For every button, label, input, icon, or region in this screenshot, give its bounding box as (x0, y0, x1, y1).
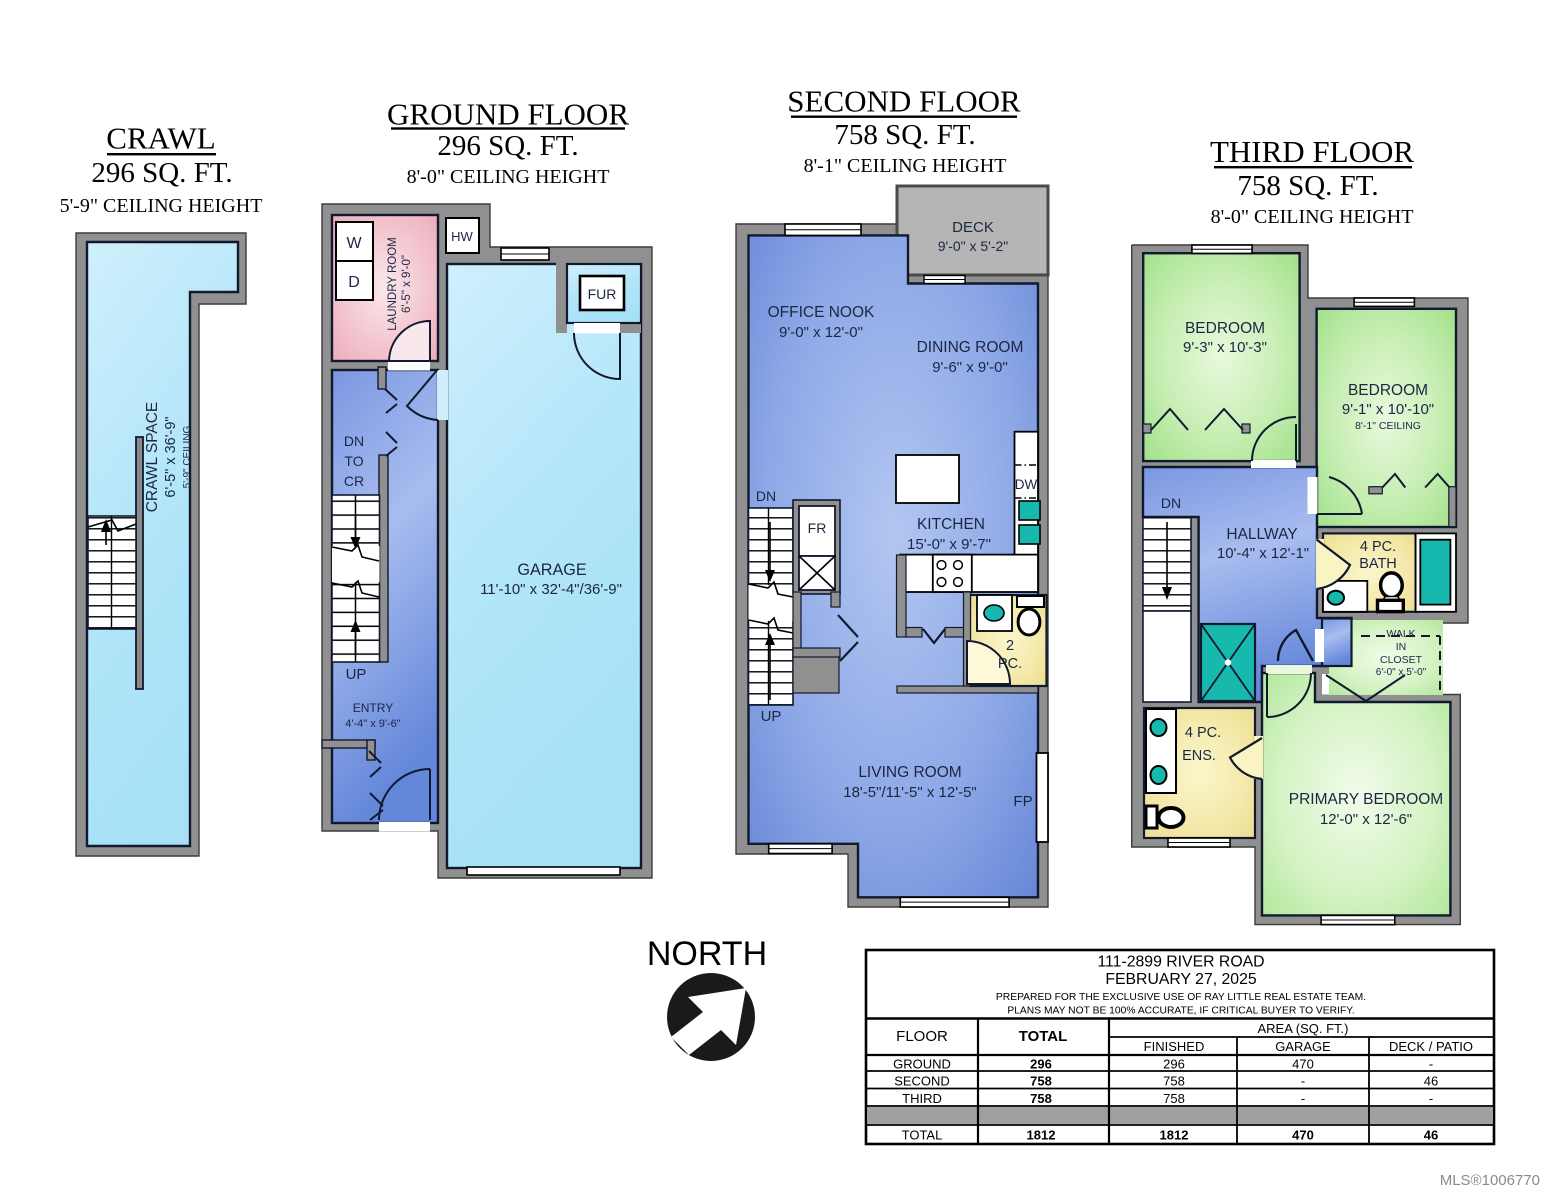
svg-text:KITCHEN: KITCHEN (917, 516, 985, 533)
svg-text:4'-4" x 9'-6": 4'-4" x 9'-6" (345, 718, 401, 730)
svg-text:DW: DW (1015, 477, 1038, 492)
svg-text:THIRD FLOOR: THIRD FLOOR (1210, 134, 1414, 169)
svg-text:GROUND: GROUND (893, 1057, 951, 1072)
svg-text:HW: HW (451, 229, 473, 244)
svg-text:18'-5"/11'-5" x 12'-5": 18'-5"/11'-5" x 12'-5" (843, 784, 977, 801)
svg-text:PREPARED FOR THE EXCLUSIVE USE: PREPARED FOR THE EXCLUSIVE USE OF RAY LI… (996, 992, 1366, 1003)
svg-text:D: D (348, 274, 360, 291)
svg-text:46: 46 (1424, 1074, 1438, 1089)
svg-text:758: 758 (1030, 1074, 1052, 1089)
svg-text:758: 758 (1030, 1091, 1052, 1106)
svg-text:CRAWL: CRAWL (106, 121, 215, 156)
svg-text:-: - (1301, 1074, 1305, 1089)
svg-text:-: - (1429, 1091, 1433, 1106)
svg-text:296: 296 (1030, 1057, 1052, 1072)
svg-text:DECK: DECK (952, 219, 994, 236)
svg-text:WALK: WALK (1386, 628, 1415, 640)
svg-text:TOTAL: TOTAL (902, 1128, 943, 1143)
svg-text:MLS®1006770: MLS®1006770 (1440, 1172, 1540, 1189)
svg-text:DN: DN (756, 488, 776, 504)
svg-text:ENTRY: ENTRY (353, 701, 393, 715)
svg-text:ENS.: ENS. (1182, 748, 1216, 764)
svg-text:CLOSET: CLOSET (1380, 654, 1423, 666)
svg-text:FINISHED: FINISHED (1144, 1039, 1205, 1054)
svg-text:1812: 1812 (1160, 1128, 1189, 1143)
svg-text:AREA (SQ. FT.): AREA (SQ. FT.) (1257, 1021, 1348, 1036)
svg-text:296 SQ. FT.: 296 SQ. FT. (91, 157, 232, 189)
svg-text:TO: TO (344, 453, 363, 469)
svg-text:CRAWL SPACE: CRAWL SPACE (144, 402, 161, 513)
svg-text:12'-0" x 12'-6": 12'-0" x 12'-6" (1320, 811, 1412, 828)
svg-text:CR: CR (344, 473, 364, 489)
svg-text:9'-0" x 5'-2": 9'-0" x 5'-2" (938, 238, 1009, 254)
svg-text:-: - (1429, 1057, 1433, 1072)
svg-text:296 SQ. FT.: 296 SQ. FT. (437, 130, 578, 162)
svg-text:BEDROOM: BEDROOM (1348, 382, 1428, 399)
svg-text:8'-0" CEILING HEIGHT: 8'-0" CEILING HEIGHT (1211, 206, 1414, 228)
svg-text:470: 470 (1292, 1057, 1314, 1072)
svg-text:111-2899 RIVER ROAD: 111-2899 RIVER ROAD (1097, 954, 1264, 971)
svg-text:PLANS MAY NOT BE 100% ACCURATE: PLANS MAY NOT BE 100% ACCURATE, IF CRITI… (1007, 1006, 1354, 1017)
svg-text:DECK / PATIO: DECK / PATIO (1389, 1039, 1473, 1054)
svg-text:46: 46 (1424, 1128, 1438, 1143)
svg-text:6'-5" x 36'-9": 6'-5" x 36'-9" (163, 416, 179, 497)
svg-text:1812: 1812 (1027, 1128, 1056, 1143)
svg-text:8'-1" CEILING: 8'-1" CEILING (1355, 420, 1421, 432)
svg-text:LIVING ROOM: LIVING ROOM (858, 764, 961, 781)
svg-text:NORTH: NORTH (647, 935, 767, 973)
svg-text:11'-10" x 32'-4"/36'-9": 11'-10" x 32'-4"/36'-9" (480, 581, 622, 598)
svg-text:DN: DN (1161, 495, 1181, 511)
svg-text:BEDROOM: BEDROOM (1185, 320, 1265, 337)
svg-text:5'-9" CEILING: 5'-9" CEILING (182, 425, 193, 488)
svg-text:8'-0" CEILING HEIGHT: 8'-0" CEILING HEIGHT (407, 166, 610, 188)
svg-text:PC.: PC. (998, 656, 1022, 672)
svg-text:9'-0" x 12'-0": 9'-0" x 12'-0" (779, 324, 863, 341)
svg-text:9'-3" x 10'-3": 9'-3" x 10'-3" (1183, 339, 1267, 356)
svg-text:758 SQ. FT.: 758 SQ. FT. (1237, 170, 1378, 202)
svg-text:IN: IN (1396, 641, 1407, 653)
svg-text:UP: UP (346, 666, 367, 683)
svg-text:FLOOR: FLOOR (896, 1028, 948, 1045)
svg-text:FP: FP (1013, 793, 1032, 810)
svg-text:OFFICE NOOK: OFFICE NOOK (768, 304, 875, 321)
svg-text:TOTAL: TOTAL (1019, 1028, 1068, 1045)
svg-text:PRIMARY BEDROOM: PRIMARY BEDROOM (1289, 791, 1443, 808)
svg-text:GARAGE: GARAGE (1275, 1039, 1331, 1054)
svg-text:BATH: BATH (1359, 556, 1397, 572)
svg-text:2: 2 (1006, 638, 1014, 654)
svg-text:758: 758 (1163, 1091, 1185, 1106)
svg-text:UP: UP (761, 708, 782, 725)
svg-text:FEBRUARY 27, 2025: FEBRUARY 27, 2025 (1105, 971, 1257, 988)
svg-text:15'-0" x 9'-7": 15'-0" x 9'-7" (907, 536, 991, 553)
svg-text:SECOND: SECOND (894, 1074, 950, 1089)
svg-text:HALLWAY: HALLWAY (1226, 526, 1297, 543)
svg-text:5'-9" CEILING HEIGHT: 5'-9" CEILING HEIGHT (60, 195, 263, 217)
svg-text:LAUNDRY ROOM: LAUNDRY ROOM (387, 237, 399, 331)
svg-text:4 PC.: 4 PC. (1185, 725, 1221, 741)
svg-text:8'-1" CEILING HEIGHT: 8'-1" CEILING HEIGHT (804, 155, 1007, 177)
svg-text:THIRD: THIRD (902, 1091, 942, 1106)
svg-text:296: 296 (1163, 1057, 1185, 1072)
svg-text:W: W (346, 235, 362, 252)
svg-text:9'-1" x 10'-10": 9'-1" x 10'-10" (1342, 401, 1434, 418)
svg-text:4 PC.: 4 PC. (1360, 539, 1396, 555)
svg-text:10'-4" x 12'-1": 10'-4" x 12'-1" (1217, 545, 1309, 562)
svg-text:758: 758 (1163, 1074, 1185, 1089)
svg-text:6'-5" x 9'-0": 6'-5" x 9'-0" (401, 255, 413, 313)
svg-text:GARAGE: GARAGE (517, 561, 586, 579)
svg-text:FR: FR (808, 520, 827, 536)
svg-text:DN: DN (344, 433, 364, 449)
svg-text:DINING ROOM: DINING ROOM (917, 339, 1024, 356)
svg-text:758 SQ. FT.: 758 SQ. FT. (834, 119, 975, 151)
svg-text:9'-6" x 9'-0": 9'-6" x 9'-0" (932, 359, 1008, 376)
svg-text:SECOND FLOOR: SECOND FLOOR (787, 84, 1021, 119)
svg-text:470: 470 (1292, 1128, 1314, 1143)
svg-text:FUR: FUR (588, 286, 617, 302)
svg-text:-: - (1301, 1091, 1305, 1106)
svg-text:GROUND FLOOR: GROUND FLOOR (387, 97, 629, 132)
